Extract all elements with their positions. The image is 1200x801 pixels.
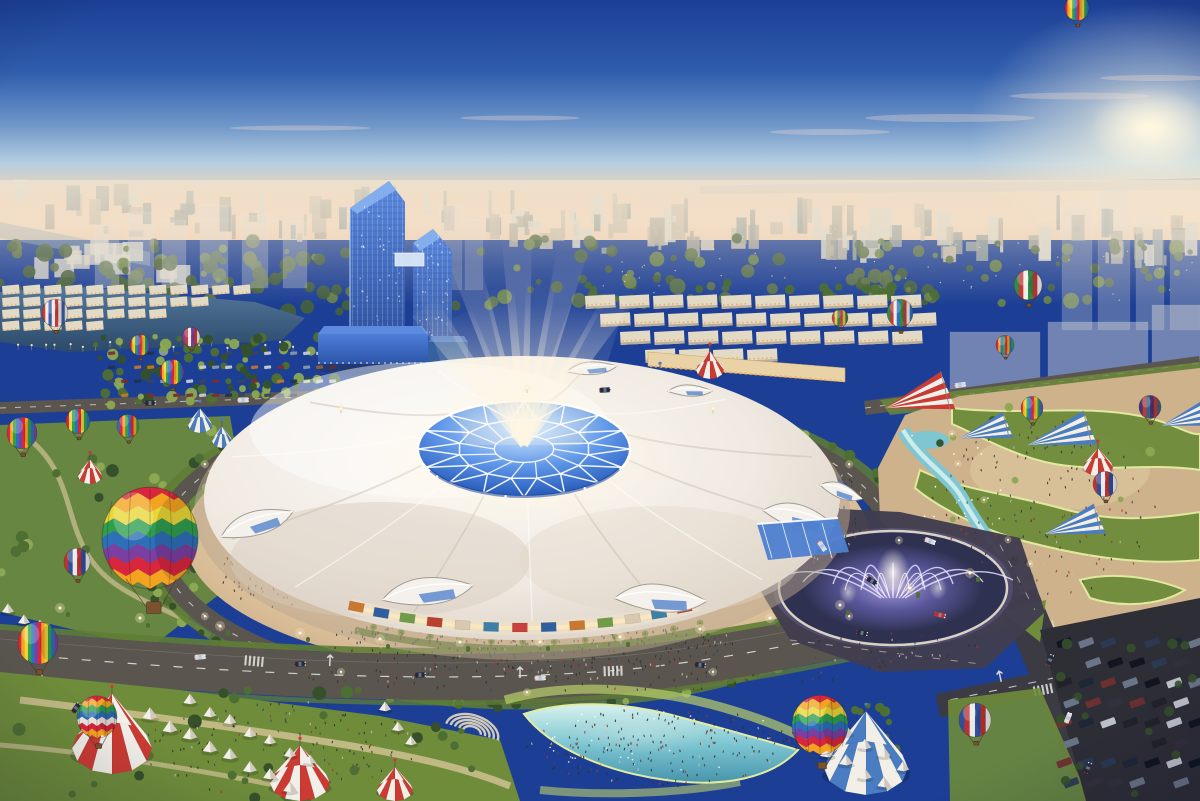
render-viewport: Aerial dusk rendering of an expo dome co… [0,0,1200,801]
dusk-vignette [0,0,1200,801]
vignette-overlay [0,0,1200,801]
aerial-dusk-render: Aerial dusk rendering of an expo dome co… [0,0,1200,801]
